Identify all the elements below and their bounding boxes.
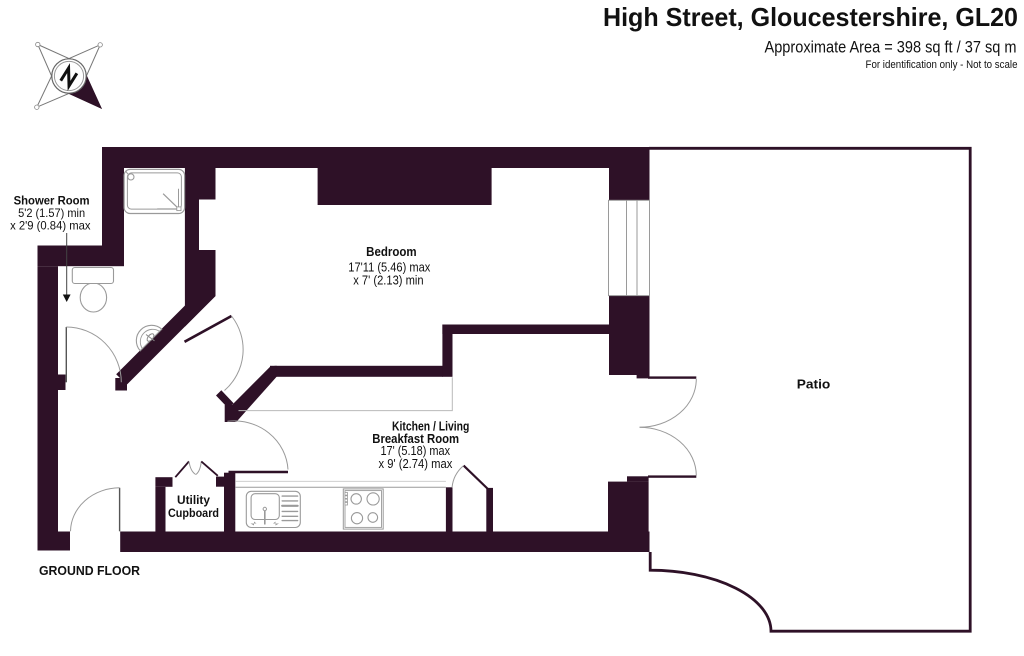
svg-text:Approximate Area = 398 sq ft /: Approximate Area = 398 sq ft / 37 sq m: [765, 37, 1017, 56]
svg-text:x 9' (2.74) max: x 9' (2.74) max: [379, 457, 453, 471]
svg-text:Bedroom: Bedroom: [366, 244, 417, 259]
svg-text:High Street, Gloucestershire,: High Street, Gloucestershire, GL20: [603, 2, 1018, 32]
svg-text:Cupboard: Cupboard: [168, 508, 219, 520]
svg-text:For identification only - Not: For identification only - Not to scale: [866, 59, 1018, 71]
svg-text:x 7' (2.13) min: x 7' (2.13) min: [353, 273, 423, 287]
svg-text:Utility: Utility: [177, 495, 211, 507]
svg-text:17'11 (5.46) max: 17'11 (5.46) max: [348, 261, 431, 275]
svg-text:GROUND FLOOR: GROUND FLOOR: [39, 563, 140, 578]
svg-text:17' (5.18) max: 17' (5.18) max: [380, 444, 450, 458]
svg-text:x 2'9 (0.84) max: x 2'9 (0.84) max: [10, 218, 90, 232]
svg-text:Patio: Patio: [797, 378, 831, 392]
